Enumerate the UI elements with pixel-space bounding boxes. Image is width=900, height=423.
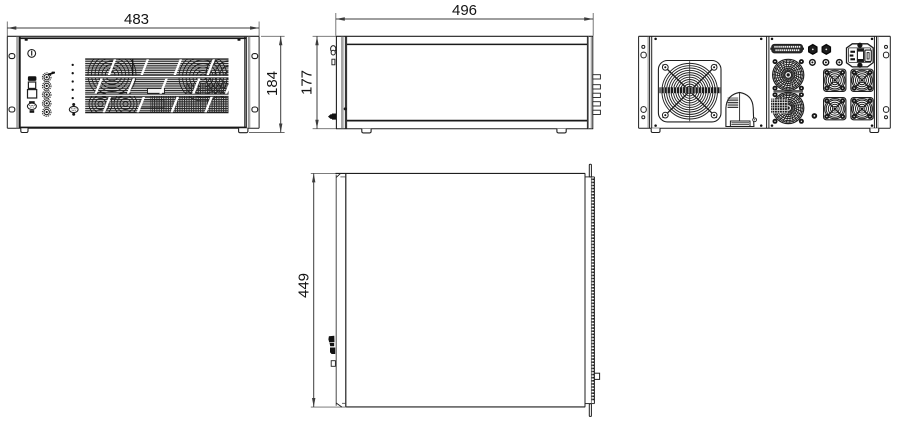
svg-text:483: 483: [124, 11, 149, 28]
svg-text:184: 184: [264, 71, 281, 96]
svg-text:177: 177: [299, 70, 316, 95]
svg-text:449: 449: [296, 273, 313, 298]
svg-text:496: 496: [452, 2, 477, 19]
